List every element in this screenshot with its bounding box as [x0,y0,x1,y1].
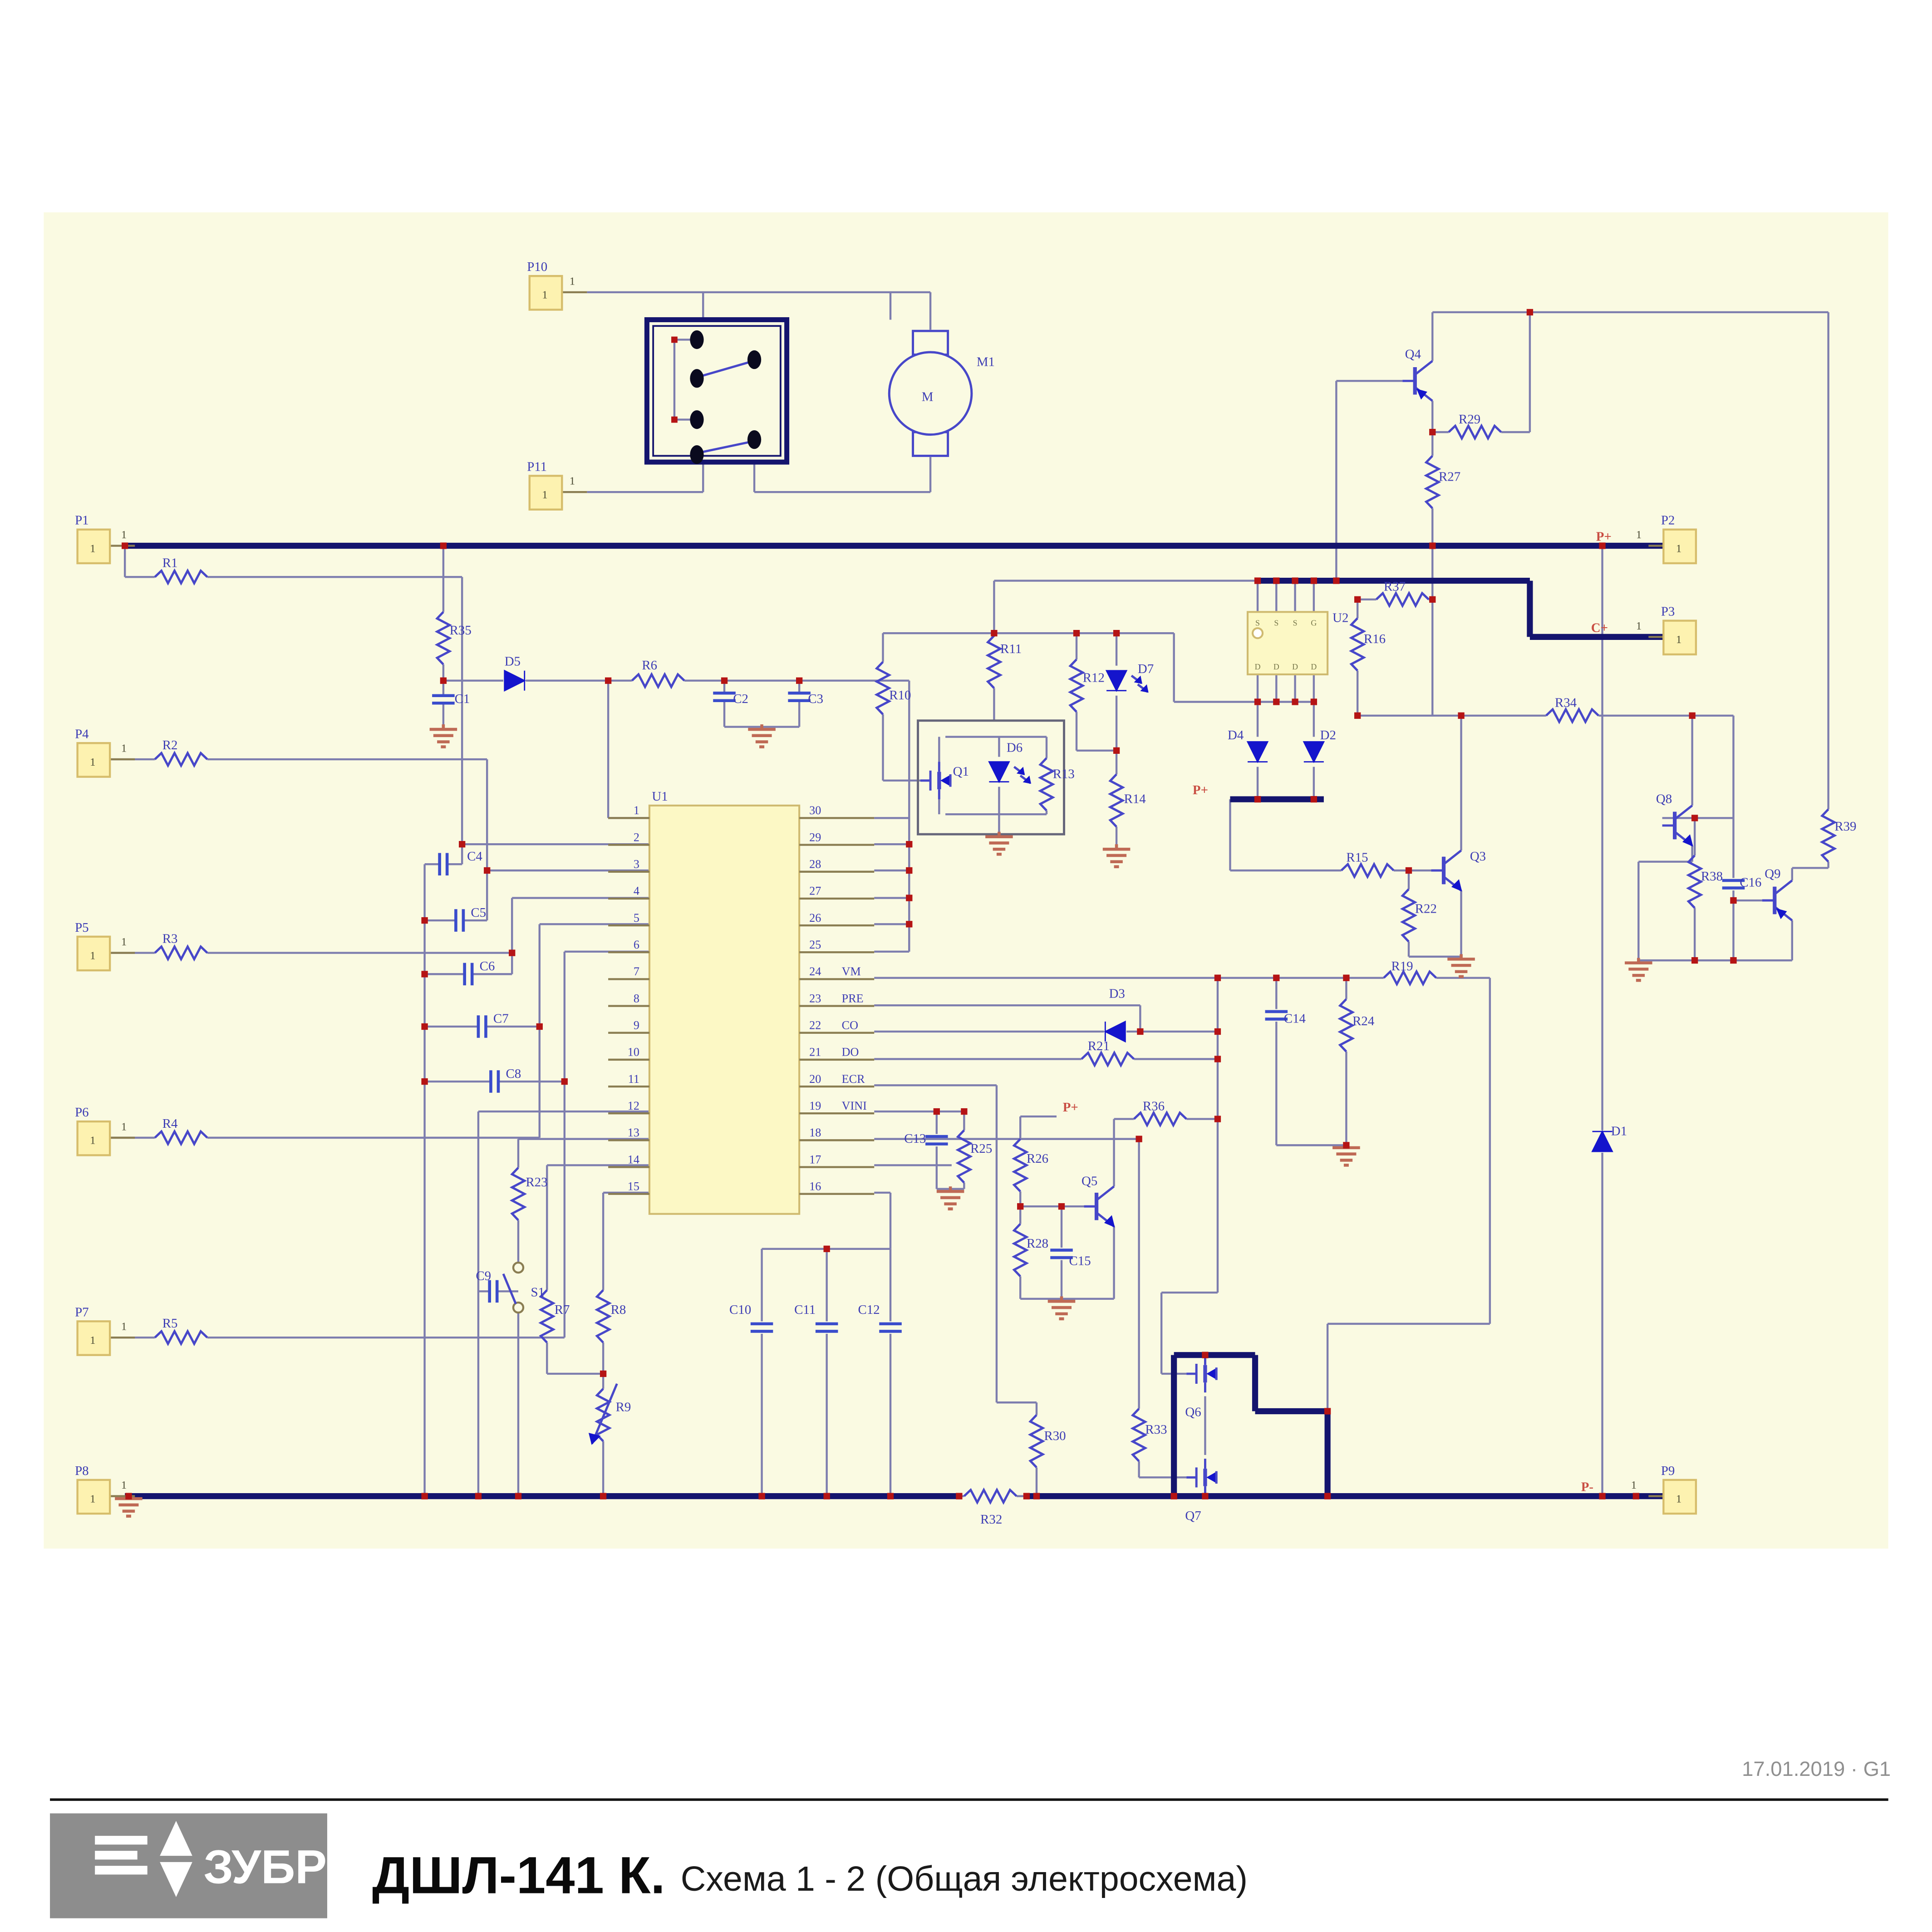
svg-text:R37: R37 [1384,580,1406,594]
svg-text:R38: R38 [1701,869,1723,884]
svg-text:R8: R8 [611,1303,626,1317]
svg-text:D: D [1292,662,1298,671]
svg-text:1: 1 [542,489,547,501]
svg-text:R30: R30 [1044,1429,1066,1443]
svg-text:VINI: VINI [842,1099,867,1112]
svg-text:C9: C9 [476,1269,491,1283]
svg-text:P-: P- [1581,1480,1593,1494]
svg-text:Q6: Q6 [1185,1405,1201,1420]
schema-subtitle: Схема 1 - 2 (Общая электросхема) [681,1859,1248,1898]
svg-text:Q8: Q8 [1656,791,1672,806]
svg-text:VM: VM [842,965,861,978]
svg-text:21: 21 [809,1046,821,1059]
svg-text:1: 1 [121,936,127,948]
svg-text:1: 1 [121,529,127,541]
svg-text:24: 24 [809,965,821,978]
svg-text:C11: C11 [794,1303,816,1317]
svg-text:DO: DO [842,1046,859,1059]
svg-text:R24: R24 [1352,1014,1374,1028]
svg-text:2: 2 [634,831,639,844]
svg-text:R2: R2 [162,738,178,752]
svg-text:P3: P3 [1661,605,1675,619]
svg-text:S: S [1274,619,1278,628]
svg-text:R13: R13 [1053,767,1075,781]
svg-text:C8: C8 [506,1067,521,1081]
svg-text:D2: D2 [1320,728,1336,742]
svg-text:22: 22 [809,1018,821,1032]
svg-text:1: 1 [1676,542,1681,555]
svg-text:R15: R15 [1346,850,1368,865]
svg-text:1: 1 [90,1334,95,1347]
svg-text:R3: R3 [162,932,178,946]
svg-text:18: 18 [809,1126,821,1139]
svg-text:C10: C10 [729,1303,751,1317]
svg-text:3: 3 [634,857,639,870]
svg-text:R21: R21 [1088,1039,1110,1053]
svg-text:C13: C13 [904,1131,926,1146]
svg-text:1: 1 [121,1321,127,1333]
svg-text:R19: R19 [1391,959,1413,973]
svg-text:9: 9 [634,1018,639,1032]
svg-text:R29: R29 [1459,412,1480,427]
svg-text:M: M [922,389,934,404]
svg-text:1: 1 [1636,529,1642,541]
svg-text:P11: P11 [527,459,547,474]
svg-text:1: 1 [570,275,575,287]
svg-text:R25: R25 [970,1141,992,1156]
svg-text:26: 26 [809,911,821,924]
svg-text:12: 12 [628,1099,639,1112]
svg-text:23: 23 [809,992,821,1005]
zubr-logo: ЗУБР [50,1814,327,1918]
svg-text:D6: D6 [1007,741,1023,755]
svg-text:CO: CO [842,1018,858,1032]
svg-text:29: 29 [809,831,821,844]
svg-text:C1: C1 [455,692,470,706]
svg-text:P9: P9 [1661,1464,1675,1478]
svg-text:C16: C16 [1740,875,1761,890]
svg-text:P+: P+ [1193,783,1208,797]
svg-text:R32: R32 [980,1512,1002,1527]
svg-text:19: 19 [809,1099,821,1112]
svg-text:P1: P1 [75,513,89,528]
svg-text:R39: R39 [1834,819,1856,834]
svg-text:C2: C2 [733,692,748,706]
svg-text:P+: P+ [1596,530,1612,544]
svg-text:30: 30 [809,804,821,817]
svg-text:R33: R33 [1145,1422,1167,1437]
svg-text:ECR: ECR [842,1072,865,1086]
svg-text:S: S [1255,619,1260,628]
svg-text:6: 6 [634,938,639,951]
svg-text:R10: R10 [889,688,911,703]
svg-text:P5: P5 [75,920,89,935]
svg-text:16: 16 [809,1180,821,1193]
svg-text:P+: P+ [1063,1100,1078,1115]
svg-text:Q3: Q3 [1470,849,1486,864]
svg-text:P2: P2 [1661,513,1675,528]
svg-text:R27: R27 [1439,469,1460,484]
schematic-canvas: MU112345678910111213141530292827262524VM… [0,0,1932,1932]
svg-text:C15: C15 [1069,1254,1091,1268]
svg-text:R11: R11 [1000,642,1022,656]
svg-text:U1: U1 [652,789,668,804]
model-title: ДШЛ-141 К. [372,1846,665,1905]
svg-text:D1: D1 [1611,1124,1627,1138]
schematic-page: MU112345678910111213141530292827262524VM… [0,0,1932,1932]
svg-text:R36: R36 [1143,1099,1165,1113]
svg-text:R7: R7 [555,1303,570,1317]
svg-text:Q7: Q7 [1185,1509,1201,1523]
svg-text:D7: D7 [1138,662,1154,676]
svg-text:R16: R16 [1364,632,1386,646]
svg-text:P10: P10 [527,260,547,274]
svg-text:1: 1 [1636,620,1642,632]
svg-text:D: D [1255,662,1261,671]
zubr-logo-text: ЗУБР [204,1841,327,1894]
svg-text:5: 5 [634,911,639,924]
svg-text:25: 25 [809,938,821,951]
svg-text:20: 20 [809,1072,821,1086]
svg-text:Q1: Q1 [953,764,969,779]
svg-text:C+: C+ [1591,620,1608,635]
svg-text:R23: R23 [526,1175,547,1190]
svg-text:R22: R22 [1415,902,1437,916]
svg-text:S1: S1 [531,1285,545,1299]
svg-text:1: 1 [90,1135,95,1147]
svg-text:R5: R5 [162,1316,178,1331]
svg-text:U2: U2 [1332,610,1348,625]
svg-text:1: 1 [542,289,547,301]
svg-text:17: 17 [809,1153,821,1166]
svg-text:P4: P4 [75,727,89,741]
svg-text:P7: P7 [75,1305,89,1319]
svg-text:D: D [1273,662,1279,671]
svg-text:M1: M1 [977,354,995,369]
svg-text:C5: C5 [471,905,486,920]
svg-text:Q9: Q9 [1765,866,1780,881]
svg-text:14: 14 [628,1153,639,1166]
svg-text:1: 1 [1631,1479,1637,1491]
svg-text:S: S [1293,619,1298,628]
svg-text:R9: R9 [616,1400,631,1415]
svg-text:C7: C7 [493,1012,509,1026]
svg-text:P6: P6 [75,1105,89,1120]
svg-text:PRE: PRE [842,992,864,1005]
svg-text:1: 1 [90,949,95,962]
svg-text:1: 1 [634,804,639,817]
svg-text:1: 1 [1676,1493,1681,1505]
svg-text:1: 1 [90,1493,95,1505]
svg-text:1: 1 [121,1121,127,1133]
svg-text:D4: D4 [1228,728,1244,742]
svg-text:1: 1 [90,542,95,555]
svg-text:R28: R28 [1027,1236,1048,1251]
svg-text:D: D [1311,662,1317,671]
svg-text:27: 27 [809,885,821,898]
svg-text:D3: D3 [1109,987,1125,1001]
svg-text:R26: R26 [1027,1151,1048,1166]
svg-text:C14: C14 [1284,1012,1306,1026]
svg-text:R14: R14 [1124,791,1146,806]
svg-text:R12: R12 [1083,670,1105,685]
svg-text:1: 1 [121,1479,127,1491]
svg-text:Q4: Q4 [1405,347,1421,362]
svg-text:15: 15 [628,1180,639,1193]
svg-text:1: 1 [90,756,95,768]
svg-text:P8: P8 [75,1464,89,1478]
revision-date: 17.01.2019 · G1 [1742,1757,1891,1780]
svg-text:C3: C3 [808,692,823,706]
svg-text:4: 4 [634,885,639,898]
svg-text:R35: R35 [450,623,472,638]
svg-text:Q5: Q5 [1082,1174,1097,1188]
svg-text:1: 1 [121,742,127,755]
svg-text:R6: R6 [642,658,657,673]
svg-text:C12: C12 [858,1303,880,1317]
svg-text:13: 13 [628,1126,639,1139]
svg-text:C6: C6 [480,959,495,973]
svg-text:1: 1 [570,475,575,487]
svg-text:G: G [1311,619,1317,628]
svg-text:28: 28 [809,857,821,870]
svg-text:R34: R34 [1555,696,1577,710]
svg-text:8: 8 [634,992,639,1005]
svg-text:11: 11 [628,1072,639,1086]
svg-text:1: 1 [1676,634,1681,646]
svg-text:7: 7 [634,965,639,978]
svg-text:C4: C4 [467,849,482,864]
svg-text:D5: D5 [505,654,521,669]
svg-text:10: 10 [628,1046,639,1059]
svg-text:R4: R4 [162,1116,178,1131]
svg-text:R1: R1 [162,556,178,570]
